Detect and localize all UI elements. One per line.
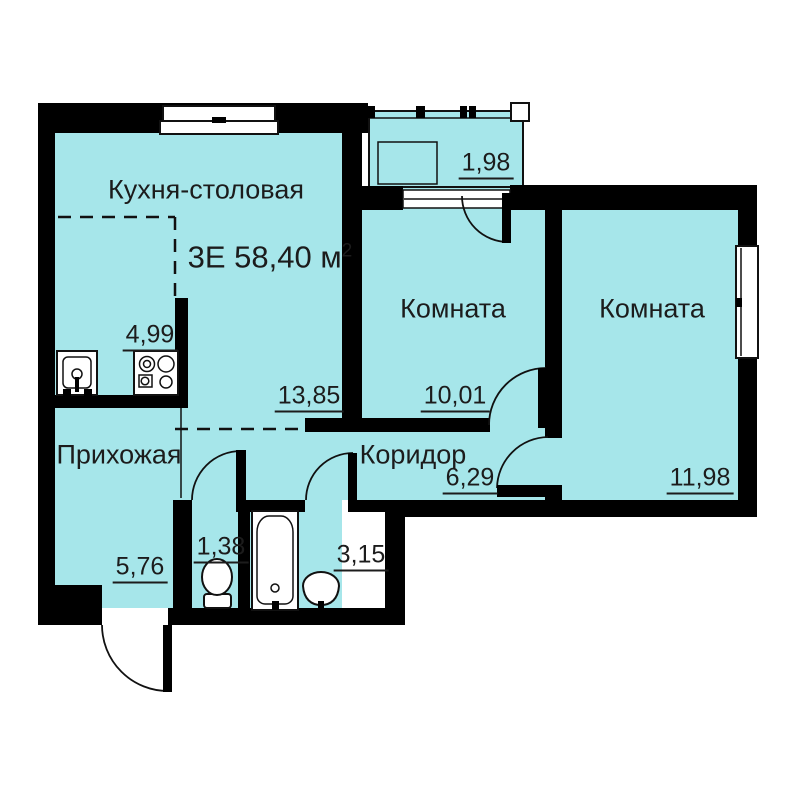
- label-bedroom2-area: 11,98: [667, 466, 734, 495]
- plan-title-main: 3Е 58,40 м: [188, 240, 342, 275]
- floor-plan-image: Кухня-столовая 3Е 58,40 м2 4,99 13,85 Ко…: [0, 0, 800, 800]
- wall-top-right: [510, 185, 757, 210]
- label-bedroom2-name: Комната: [599, 296, 705, 323]
- wall-bottom-right: [390, 500, 757, 517]
- stove: [134, 351, 178, 395]
- label-kitchen-name: Кухня-столовая: [108, 177, 304, 204]
- wall-left: [38, 103, 55, 625]
- wall-bottom-left-chunk: [38, 585, 102, 625]
- label-wc-area: 1,38: [194, 535, 249, 564]
- label-hallway-area: 5,76: [113, 555, 168, 584]
- bedroom1-door-leaf: [538, 368, 551, 428]
- wall-corridor-top: [305, 418, 490, 432]
- balcony-inner-box: [378, 142, 437, 184]
- balcony-door-leaf: [502, 193, 511, 243]
- plan-title-sup: 2: [342, 240, 353, 261]
- entrance-door-arc: [102, 625, 168, 691]
- label-bathroom-area: 3,15: [334, 543, 389, 572]
- floor-plan-drawing: [0, 0, 800, 800]
- label-plan-title: 3Е 58,40 м2: [188, 241, 353, 272]
- entrance-door-leaf: [163, 625, 172, 692]
- balcony-door-window-unit: [403, 190, 510, 208]
- kitchen-sink: [57, 351, 97, 397]
- label-bedroom1-name: Комната: [400, 296, 506, 323]
- label-kitchen-cooking-area: 4,99: [123, 323, 178, 352]
- toilet: [202, 559, 232, 608]
- wall-wc-left: [173, 500, 192, 613]
- bathtub: [252, 511, 298, 610]
- bedroom2-fill: [545, 185, 740, 500]
- label-corridor-area: 6,29: [443, 466, 498, 495]
- wc-door-leaf: [236, 450, 246, 500]
- kitchen-window: [160, 106, 278, 134]
- label-bedroom1-area: 10,01: [421, 384, 490, 413]
- bedroom2-door-leaf: [497, 485, 547, 497]
- wall-bedroom2-door-jamb: [545, 485, 562, 505]
- wall-kitchen-nook-h: [55, 395, 188, 408]
- label-balcony-area: 1,98: [459, 151, 514, 180]
- wall-bedroom1-top: [362, 186, 403, 210]
- bathroom-door-leaf: [348, 453, 357, 500]
- balcony-corner-post: [511, 103, 529, 121]
- label-hallway-name: Прихожая: [56, 442, 181, 469]
- label-kitchen-dining-area: 13,85: [275, 384, 344, 413]
- bedroom2-window: [736, 246, 758, 358]
